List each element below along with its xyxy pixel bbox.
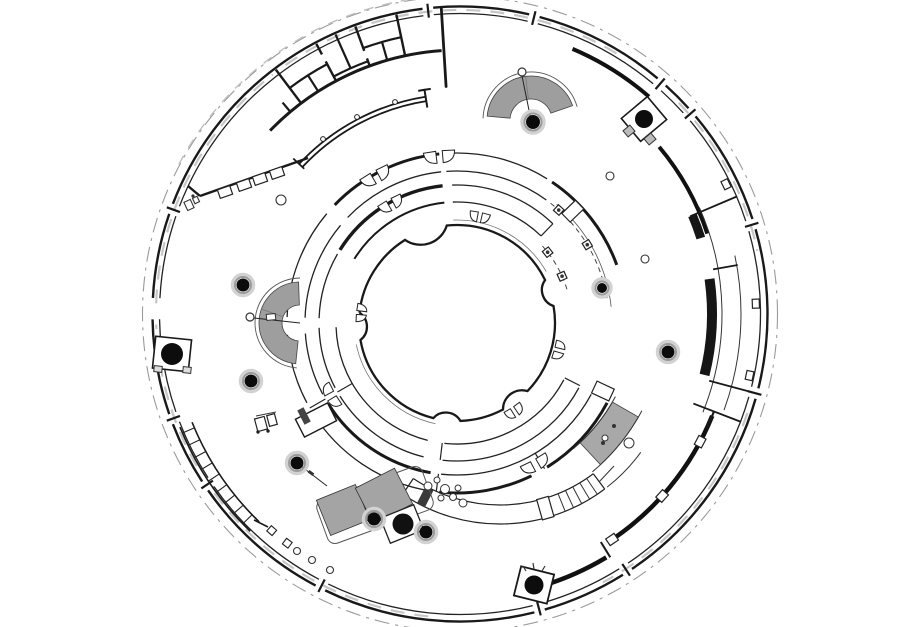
floor-plan-page — [0, 0, 900, 627]
outer-shell — [143, 0, 778, 627]
floor-plan-canvas — [0, 0, 900, 627]
central-rings — [287, 150, 617, 493]
columns-and-boxes — [152, 97, 678, 604]
top-left-rooms — [184, 9, 446, 211]
stair-left — [180, 422, 334, 573]
mullion-arc — [293, 89, 431, 169]
walkway-ramp — [403, 452, 641, 524]
